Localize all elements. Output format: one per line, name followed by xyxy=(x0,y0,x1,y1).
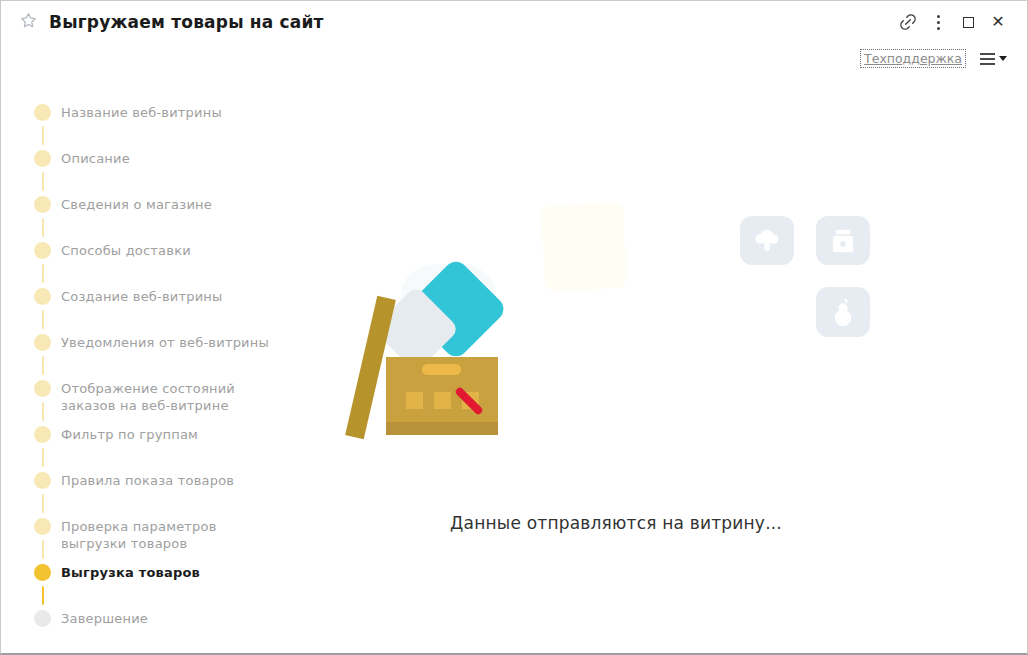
step-connector xyxy=(42,172,44,191)
step-connector xyxy=(42,448,44,467)
broccoli-icon xyxy=(740,216,794,265)
open-box-illustration xyxy=(346,264,511,449)
step-connector xyxy=(42,586,44,605)
chevron-down-icon xyxy=(999,56,1007,61)
stepper-step: Завершение xyxy=(34,610,284,655)
stepper-step: Фильтр по группам xyxy=(34,426,284,472)
get-link-button[interactable] xyxy=(893,8,923,36)
more-vert-icon xyxy=(937,15,940,30)
stepper-step: Описание xyxy=(34,150,284,196)
status-message: Данные отправляются на витрину... xyxy=(341,513,891,533)
more-menu-button[interactable] xyxy=(923,8,953,36)
box-handle-shape xyxy=(422,364,461,375)
step-dot-icon xyxy=(34,472,51,489)
maximize-button[interactable] xyxy=(953,8,983,36)
step-dot-icon xyxy=(34,334,51,351)
step-connector xyxy=(42,540,44,559)
toolbar: Техподдержка xyxy=(860,49,1009,68)
window-title: Выгружаем товары на сайт xyxy=(49,12,324,32)
step-dot-icon xyxy=(34,518,51,535)
stepper-step: Уведомления от веб-витрины xyxy=(34,334,284,380)
step-label: Создание веб-витрины xyxy=(61,288,223,306)
box-label-square xyxy=(434,392,451,409)
red-marker-shape xyxy=(454,386,484,416)
box-front-shape xyxy=(386,357,498,435)
step-dot-icon xyxy=(34,610,51,627)
stepper-step: Выгрузка товаров xyxy=(34,564,284,610)
support-link[interactable]: Техподдержка xyxy=(860,49,966,68)
form-menu-button[interactable] xyxy=(978,51,1009,67)
step-dot-icon xyxy=(34,288,51,305)
step-dot-icon xyxy=(34,380,51,397)
step-label: Фильтр по группам xyxy=(61,426,198,444)
close-button[interactable]: ✕ xyxy=(983,8,1013,36)
step-connector xyxy=(42,218,44,237)
step-label: Правила показа товаров xyxy=(61,472,234,490)
faded-blob-decoration xyxy=(541,202,627,292)
step-dot-icon xyxy=(34,104,51,121)
step-label: Выгрузка товаров xyxy=(61,564,200,582)
step-dot-icon xyxy=(34,242,51,259)
box-bottom-strip xyxy=(386,422,498,435)
app-window: Выгружаем товары на сайт ✕ Техподдержка xyxy=(0,0,1028,655)
close-icon: ✕ xyxy=(991,14,1004,30)
step-connector xyxy=(42,356,44,375)
stepper-step: Сведения о магазине xyxy=(34,196,284,242)
pear-icon xyxy=(816,287,870,337)
title-bar: Выгружаем товары на сайт ✕ xyxy=(1,1,1027,43)
box-label-square xyxy=(406,392,423,409)
link-icon xyxy=(894,8,922,36)
step-label: Описание xyxy=(61,150,130,168)
hamburger-menu-icon xyxy=(980,53,995,65)
stepper-step: Правила показа товаров xyxy=(34,472,284,518)
star-icon xyxy=(19,11,38,34)
step-connector xyxy=(42,126,44,145)
step-label: Сведения о магазине xyxy=(61,196,212,214)
step-label: Завершение xyxy=(61,610,148,628)
step-label: Отображение состояний заказов на веб-вит… xyxy=(61,380,235,414)
favorite-button[interactable] xyxy=(17,11,39,33)
stepper-step: Создание веб-витрины xyxy=(34,288,284,334)
step-label: Способы доставки xyxy=(61,242,191,260)
stepper-step: Проверка параметров выгрузки товаров xyxy=(34,518,284,564)
step-label: Проверка параметров выгрузки товаров xyxy=(61,518,217,552)
step-label: Название веб-витрины xyxy=(61,104,222,122)
step-dot-icon xyxy=(34,564,51,581)
maximize-icon xyxy=(963,17,974,28)
jar-icon xyxy=(816,216,870,265)
step-connector xyxy=(42,310,44,329)
step-connector xyxy=(42,494,44,513)
stepper: Название веб-витрины Описание Сведения о… xyxy=(34,104,284,655)
stepper-step: Отображение состояний заказов на веб-вит… xyxy=(34,380,284,426)
step-connector xyxy=(42,402,44,421)
stepper-step: Название веб-витрины xyxy=(34,104,284,150)
step-connector xyxy=(42,264,44,283)
step-dot-icon xyxy=(34,196,51,213)
step-label: Уведомления от веб-витрины xyxy=(61,334,269,352)
step-dot-icon xyxy=(34,426,51,443)
step-dot-icon xyxy=(34,150,51,167)
stepper-step: Способы доставки xyxy=(34,242,284,288)
